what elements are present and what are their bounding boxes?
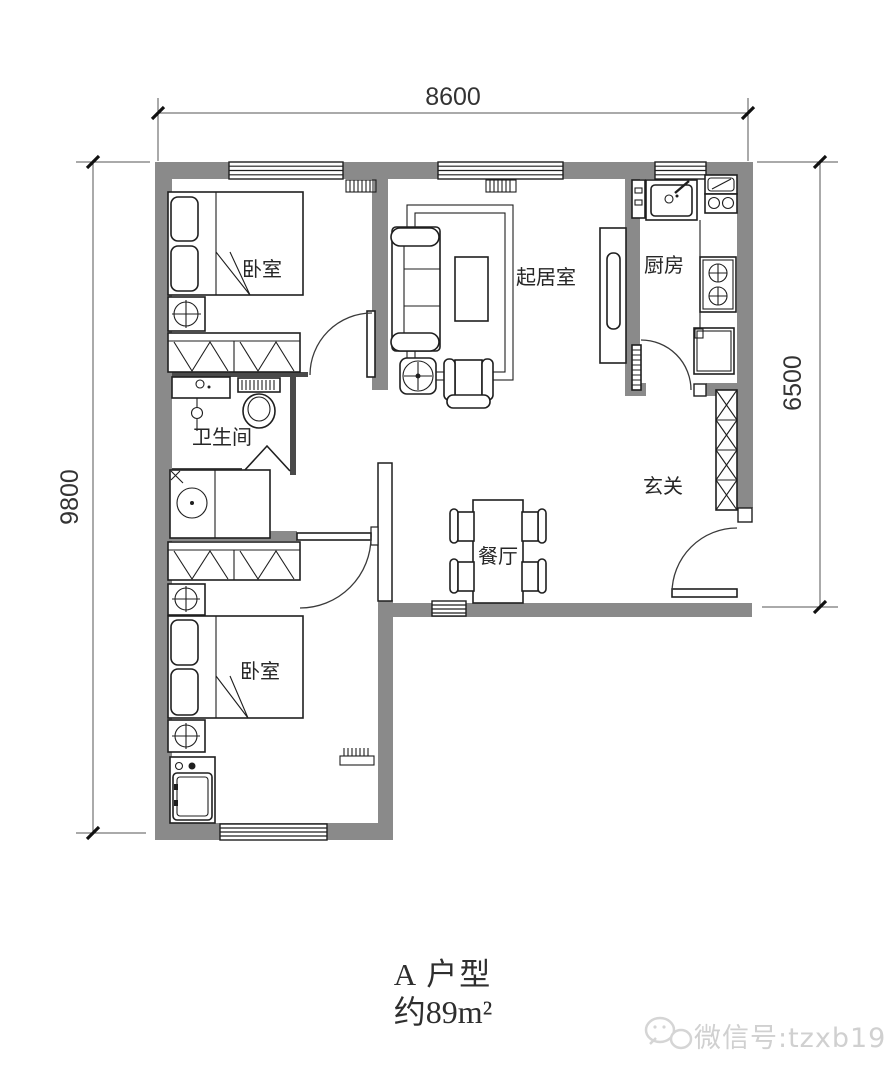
radiator-icon [340, 748, 374, 765]
bed-icon [168, 616, 303, 718]
coffee-table-icon [455, 257, 488, 321]
water-heater-icon [705, 175, 737, 213]
nightstand-icon [168, 297, 205, 331]
bed-icon [168, 192, 303, 295]
floor-plan-page: 8600 9800 6500 [0, 0, 888, 1072]
watermark-text: 微信号:tzxb1986 [694, 1023, 888, 1054]
washing-machine-icon [170, 470, 270, 538]
window-icon [229, 162, 343, 179]
dim-top-value: 8600 [425, 83, 481, 111]
radiator-icon [346, 180, 376, 192]
shoe-closet-icon [716, 390, 737, 510]
dim-left-value: 9800 [56, 469, 84, 525]
chair-icon [522, 559, 546, 593]
partition-column [378, 463, 392, 601]
plan-title-line1: A 户型 [394, 957, 492, 992]
washer-dryer-icon [170, 757, 215, 823]
kitchen-cabinet-icon [632, 180, 645, 218]
plan-title: A 户型 约89m² [394, 957, 493, 1030]
room-label-bathroom: 卫生间 [192, 425, 252, 449]
wechat-icon [646, 1018, 691, 1048]
laundry-nook [168, 470, 300, 580]
window-icon [655, 162, 706, 179]
dimension-right: 6500 [757, 156, 838, 613]
plan-title-line2: 约89m² [394, 994, 493, 1030]
dimension-top: 8600 [152, 83, 754, 161]
door-swing-icon [632, 340, 691, 390]
door-jamb [738, 508, 752, 522]
stove-icon [700, 257, 736, 312]
floor-plan-drawing: 8600 9800 6500 [0, 0, 888, 1072]
chair-icon [450, 559, 474, 593]
window-icon [220, 824, 327, 840]
side-table-lamp-icon [400, 358, 436, 394]
wardrobe-icon [168, 542, 300, 580]
bathroom: 卫生间 [172, 377, 290, 471]
door-swing-icon [297, 533, 371, 608]
nightstand-icon [168, 584, 205, 615]
armchair-icon [444, 359, 493, 408]
kitchen-sink-icon [646, 180, 697, 220]
fridge-icon [694, 328, 734, 374]
partition-tab [371, 527, 378, 545]
room-label-bedroom-bottom: 卧室 [240, 659, 280, 683]
room-label-living: 起居室 [516, 265, 576, 289]
nightstand-icon [168, 720, 205, 752]
kitchen: 厨房 [632, 175, 737, 390]
dim-right-value: 6500 [779, 355, 807, 411]
radiator-icon [486, 180, 516, 192]
folding-door-icon [244, 446, 290, 471]
toilet-icon [238, 378, 280, 428]
watermark: 微信号:tzxb1986 [646, 1018, 888, 1054]
dining-area: 餐厅 [450, 500, 546, 603]
wardrobe-icon [168, 333, 300, 372]
room-label-entry: 玄关 [643, 474, 683, 498]
living-room: 起居室 [391, 180, 626, 408]
room-label-dining: 餐厅 [478, 544, 518, 568]
room-label-bedroom-top: 卧室 [242, 257, 282, 281]
chair-icon [522, 509, 546, 543]
entry-door-swing-icon [672, 528, 737, 597]
vanity-sink-icon [172, 377, 230, 431]
entry-area: 玄关 [643, 390, 737, 597]
vent-icon [432, 601, 466, 616]
door-swing-icon [310, 311, 375, 377]
room-label-kitchen: 厨房 [644, 253, 684, 277]
sofa-icon [391, 227, 440, 351]
tv-cabinet-icon [600, 228, 626, 363]
chair-icon [450, 509, 474, 543]
bedroom-top: 卧室 [168, 180, 376, 377]
window-icon [438, 162, 563, 179]
door-jamb [694, 384, 706, 396]
dimension-left: 9800 [56, 156, 150, 839]
